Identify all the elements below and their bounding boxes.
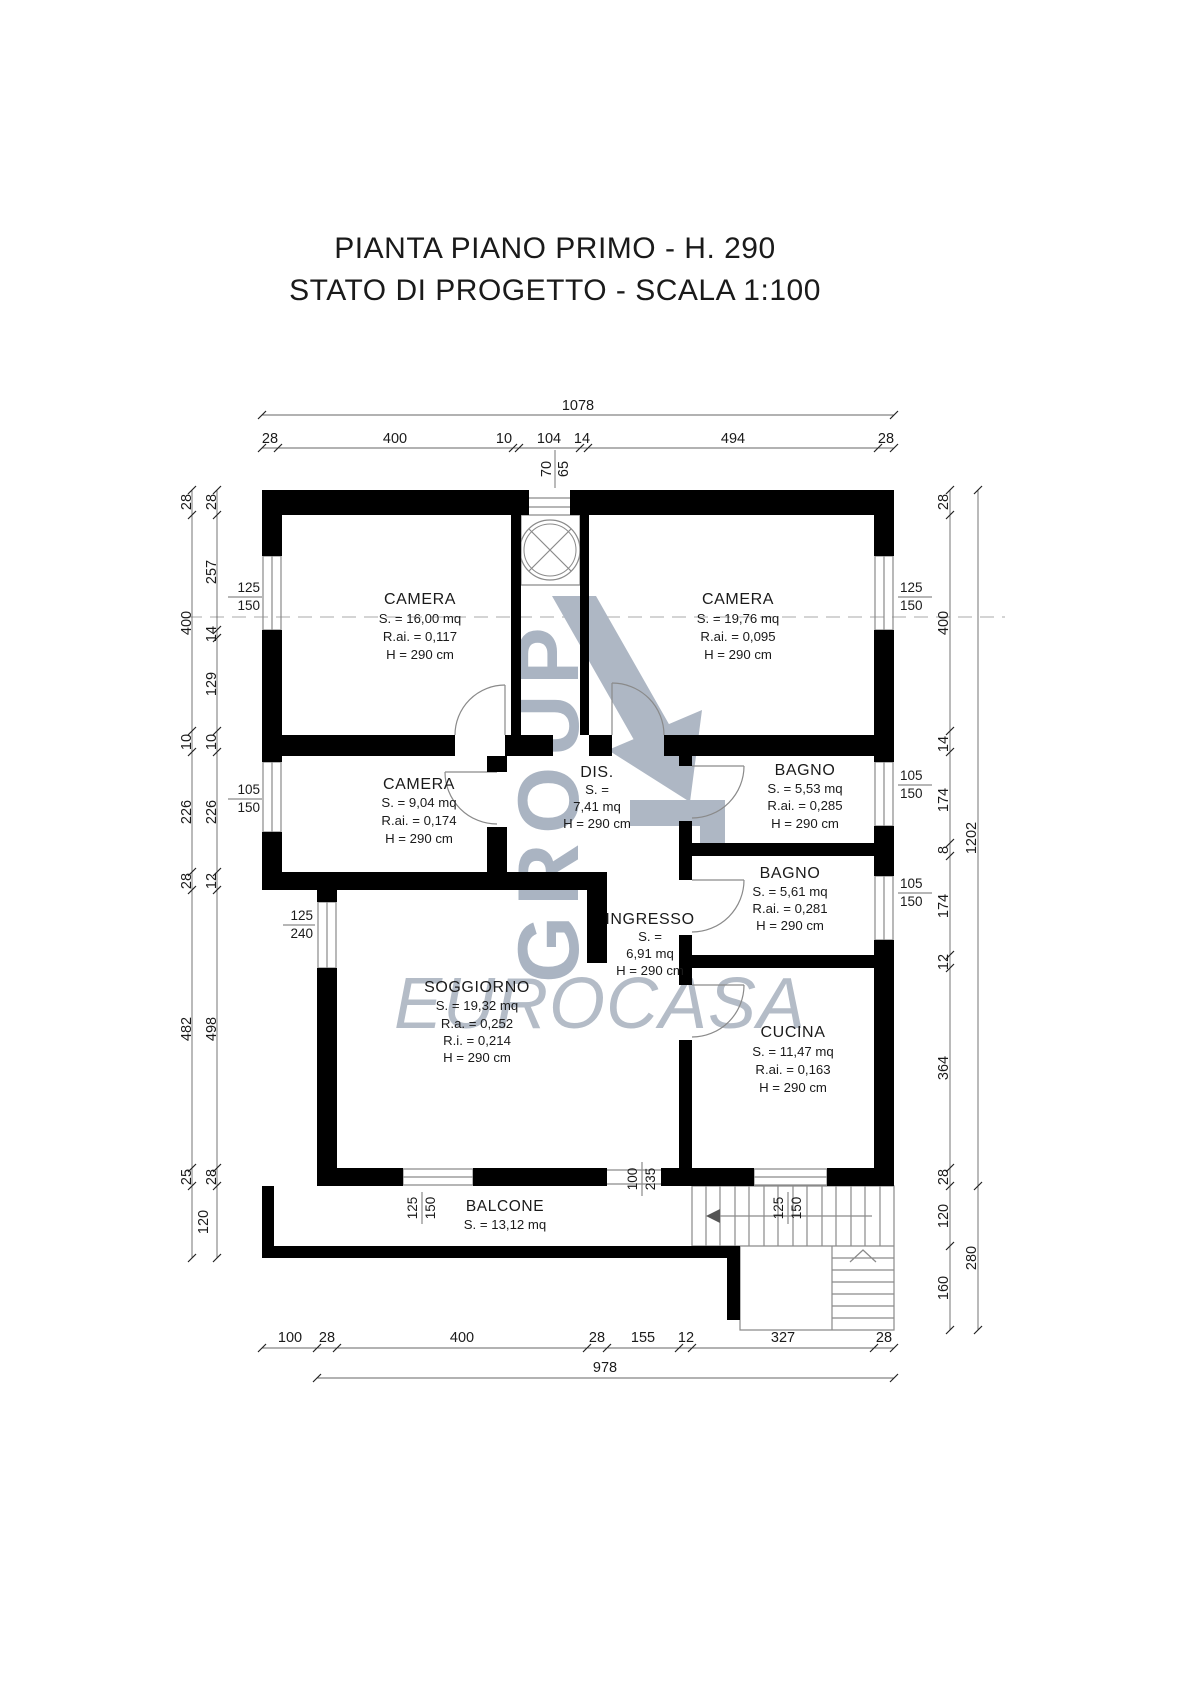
room-name: INGRESSO [605, 911, 694, 928]
room-detail: S. = 19,32 mq [436, 998, 518, 1013]
drawing-title: PIANTA PIANO PRIMO - H. 290 STATO DI PRO… [289, 232, 821, 307]
window-dim: 125 [900, 580, 923, 595]
dim-label: 364 [936, 1056, 952, 1080]
dim-label: 978 [593, 1360, 617, 1376]
dim-label: 226 [179, 800, 195, 824]
window-dim: 125 [237, 580, 260, 595]
window-dim: 150 [237, 800, 260, 815]
window-dim: 150 [789, 1197, 804, 1220]
door-dim: 235 [643, 1168, 658, 1191]
dim-label: 25 [179, 1169, 195, 1185]
dim-label: 28 [878, 431, 894, 447]
dim-label: 28 [179, 873, 195, 889]
floor-plan-canvas: PIANTA PIANO PRIMO - H. 290 STATO DI PRO… [0, 0, 1190, 1684]
room-detail: R.ai. = 0,285 [767, 798, 842, 813]
room-name: SOGGIORNO [424, 979, 530, 996]
room-detail: H = 290 cm [756, 918, 824, 933]
dim-label: 120 [196, 1210, 212, 1234]
room-detail: S. = 13,12 mq [464, 1217, 546, 1232]
dim-label: 65 [556, 461, 572, 477]
window-dim: 150 [900, 786, 923, 801]
dim-label: 174 [936, 894, 952, 918]
dim-label: 10 [204, 734, 220, 750]
room-detail: H = 290 cm [443, 1050, 511, 1065]
window-dim: 150 [237, 598, 260, 613]
dim-label: 28 [589, 1330, 605, 1346]
dim-label: 28 [204, 1169, 220, 1185]
room-label-balcone: BALCONE S. = 13,12 mq [464, 1198, 546, 1232]
dim-label: 174 [936, 788, 952, 812]
room-detail: H = 290 cm [704, 647, 772, 662]
room-detail: H = 290 cm [385, 831, 453, 846]
top-dimensions: 1078 28 400 10 104 14 494 28 70 65 [262, 398, 894, 477]
room-detail: S. = 11,47 mq [752, 1044, 834, 1059]
window-dim: 105 [900, 876, 923, 891]
dim-label: 10 [496, 431, 512, 447]
room-detail: R.ai. = 0,281 [752, 901, 827, 916]
room-detail: H = 290 cm [386, 647, 454, 662]
room-detail: R.ai. = 0,117 [383, 629, 457, 644]
dim-label: 155 [631, 1330, 655, 1346]
room-name: DIS. [580, 764, 614, 781]
dim-label: 160 [936, 1276, 952, 1300]
room-label-bagno-2: BAGNO S. = 5,61 mq R.ai. = 0,281 H = 290… [752, 865, 827, 933]
dim-label: 104 [537, 431, 561, 447]
dim-label: 482 [179, 1017, 195, 1041]
dim-label: 12 [936, 954, 952, 970]
room-detail: S. = [585, 782, 609, 797]
room-detail: R.ai. = 0,095 [700, 629, 775, 644]
room-detail: R.i. = 0,214 [443, 1033, 511, 1048]
room-detail: R.ai. = 0,174 [381, 813, 456, 828]
dim-label: 28 [936, 1169, 952, 1185]
window-dim: 125 [771, 1197, 786, 1220]
room-detail: H = 290 cm [616, 963, 684, 978]
dim-label: 1202 [964, 822, 980, 854]
room-label-bagno-1: BAGNO S. = 5,53 mq R.ai. = 0,285 H = 290… [767, 762, 842, 831]
window-dim: 150 [900, 894, 923, 909]
right-dimensions: 28 400 14 174 8 174 12 364 28 120 160 12… [936, 494, 980, 1300]
dim-label: 8 [936, 846, 952, 854]
room-name: BAGNO [775, 762, 836, 779]
room-name: BALCONE [466, 1198, 544, 1215]
dim-label: 1078 [562, 398, 594, 414]
dim-label: 14 [574, 431, 590, 447]
dim-label: 70 [539, 461, 555, 477]
dim-label: 28 [319, 1330, 335, 1346]
left-dimensions: 28 400 10 226 28 482 25 28 257 14 129 10… [179, 494, 220, 1234]
room-detail: R.a. = 0,252 [441, 1016, 513, 1031]
dim-label: 28 [179, 494, 195, 510]
dim-label: 257 [204, 560, 220, 584]
dim-label: 400 [383, 431, 407, 447]
room-label-camera-1: CAMERA S. = 16,00 mq R.ai. = 0,117 H = 2… [379, 591, 461, 662]
dim-label: 494 [721, 431, 745, 447]
dim-label: 100 [278, 1330, 302, 1346]
dim-label: 10 [179, 734, 195, 750]
room-label-camera-2: CAMERA S. = 19,76 mq R.ai. = 0,095 H = 2… [697, 591, 779, 662]
room-label-camera-3: CAMERA S. = 9,04 mq R.ai. = 0,174 H = 29… [381, 776, 456, 846]
room-name: CAMERA [702, 591, 774, 608]
room-name: CAMERA [384, 591, 456, 608]
room-detail: S. = [638, 929, 662, 944]
room-detail: 7,41 mq [573, 799, 621, 814]
room-detail: S. = 19,76 mq [697, 611, 779, 626]
window-dim: 105 [237, 782, 260, 797]
window-dim: 150 [423, 1197, 438, 1220]
room-detail: H = 290 cm [759, 1080, 827, 1095]
room-detail: S. = 16,00 mq [379, 611, 461, 626]
room-name: BAGNO [760, 865, 821, 882]
dim-label: 14 [936, 736, 952, 752]
room-detail: 6,91 mq [626, 946, 674, 961]
dim-label: 120 [936, 1204, 952, 1228]
window-dim: 240 [290, 926, 313, 941]
dim-label: 226 [204, 800, 220, 824]
dim-label: 400 [936, 611, 952, 635]
room-detail: H = 290 cm [771, 816, 839, 831]
stair-arrow-head [706, 1209, 720, 1223]
room-detail: S. = 5,53 mq [767, 781, 842, 796]
dim-label: 28 [876, 1330, 892, 1346]
floor-plan-page: PIANTA PIANO PRIMO - H. 290 STATO DI PRO… [0, 0, 1190, 1684]
bottom-dimensions: 100 28 400 28 155 12 327 28 978 [278, 1330, 892, 1376]
room-name: CUCINA [761, 1024, 826, 1041]
dim-label: 129 [204, 672, 220, 696]
title-line-2: STATO DI PROGETTO - SCALA 1:100 [289, 274, 821, 307]
room-detail: S. = 5,61 mq [752, 884, 827, 899]
window-dim: 125 [405, 1197, 420, 1220]
dim-label: 400 [179, 611, 195, 635]
window-dim: 125 [290, 908, 313, 923]
dim-label: 327 [771, 1330, 795, 1346]
dim-label: 12 [204, 873, 220, 889]
window-dim: 105 [900, 768, 923, 783]
window-dim: 150 [900, 598, 923, 613]
dim-label: 400 [450, 1330, 474, 1346]
dim-label: 14 [204, 626, 220, 642]
room-label-cucina: CUCINA S. = 11,47 mq R.ai. = 0,163 H = 2… [752, 1024, 834, 1095]
room-detail: R.ai. = 0,163 [755, 1062, 830, 1077]
dim-label: 28 [262, 431, 278, 447]
dim-label: 28 [204, 494, 220, 510]
title-line-1: PIANTA PIANO PRIMO - H. 290 [334, 232, 775, 265]
room-name: CAMERA [383, 776, 455, 793]
room-detail: S. = 9,04 mq [381, 795, 456, 810]
dim-label: 28 [936, 494, 952, 510]
room-detail: H = 290 cm [563, 816, 631, 831]
door-dim: 100 [625, 1168, 640, 1191]
dim-label: 498 [204, 1017, 220, 1041]
dim-label: 280 [964, 1246, 980, 1270]
dim-label: 12 [678, 1330, 694, 1346]
